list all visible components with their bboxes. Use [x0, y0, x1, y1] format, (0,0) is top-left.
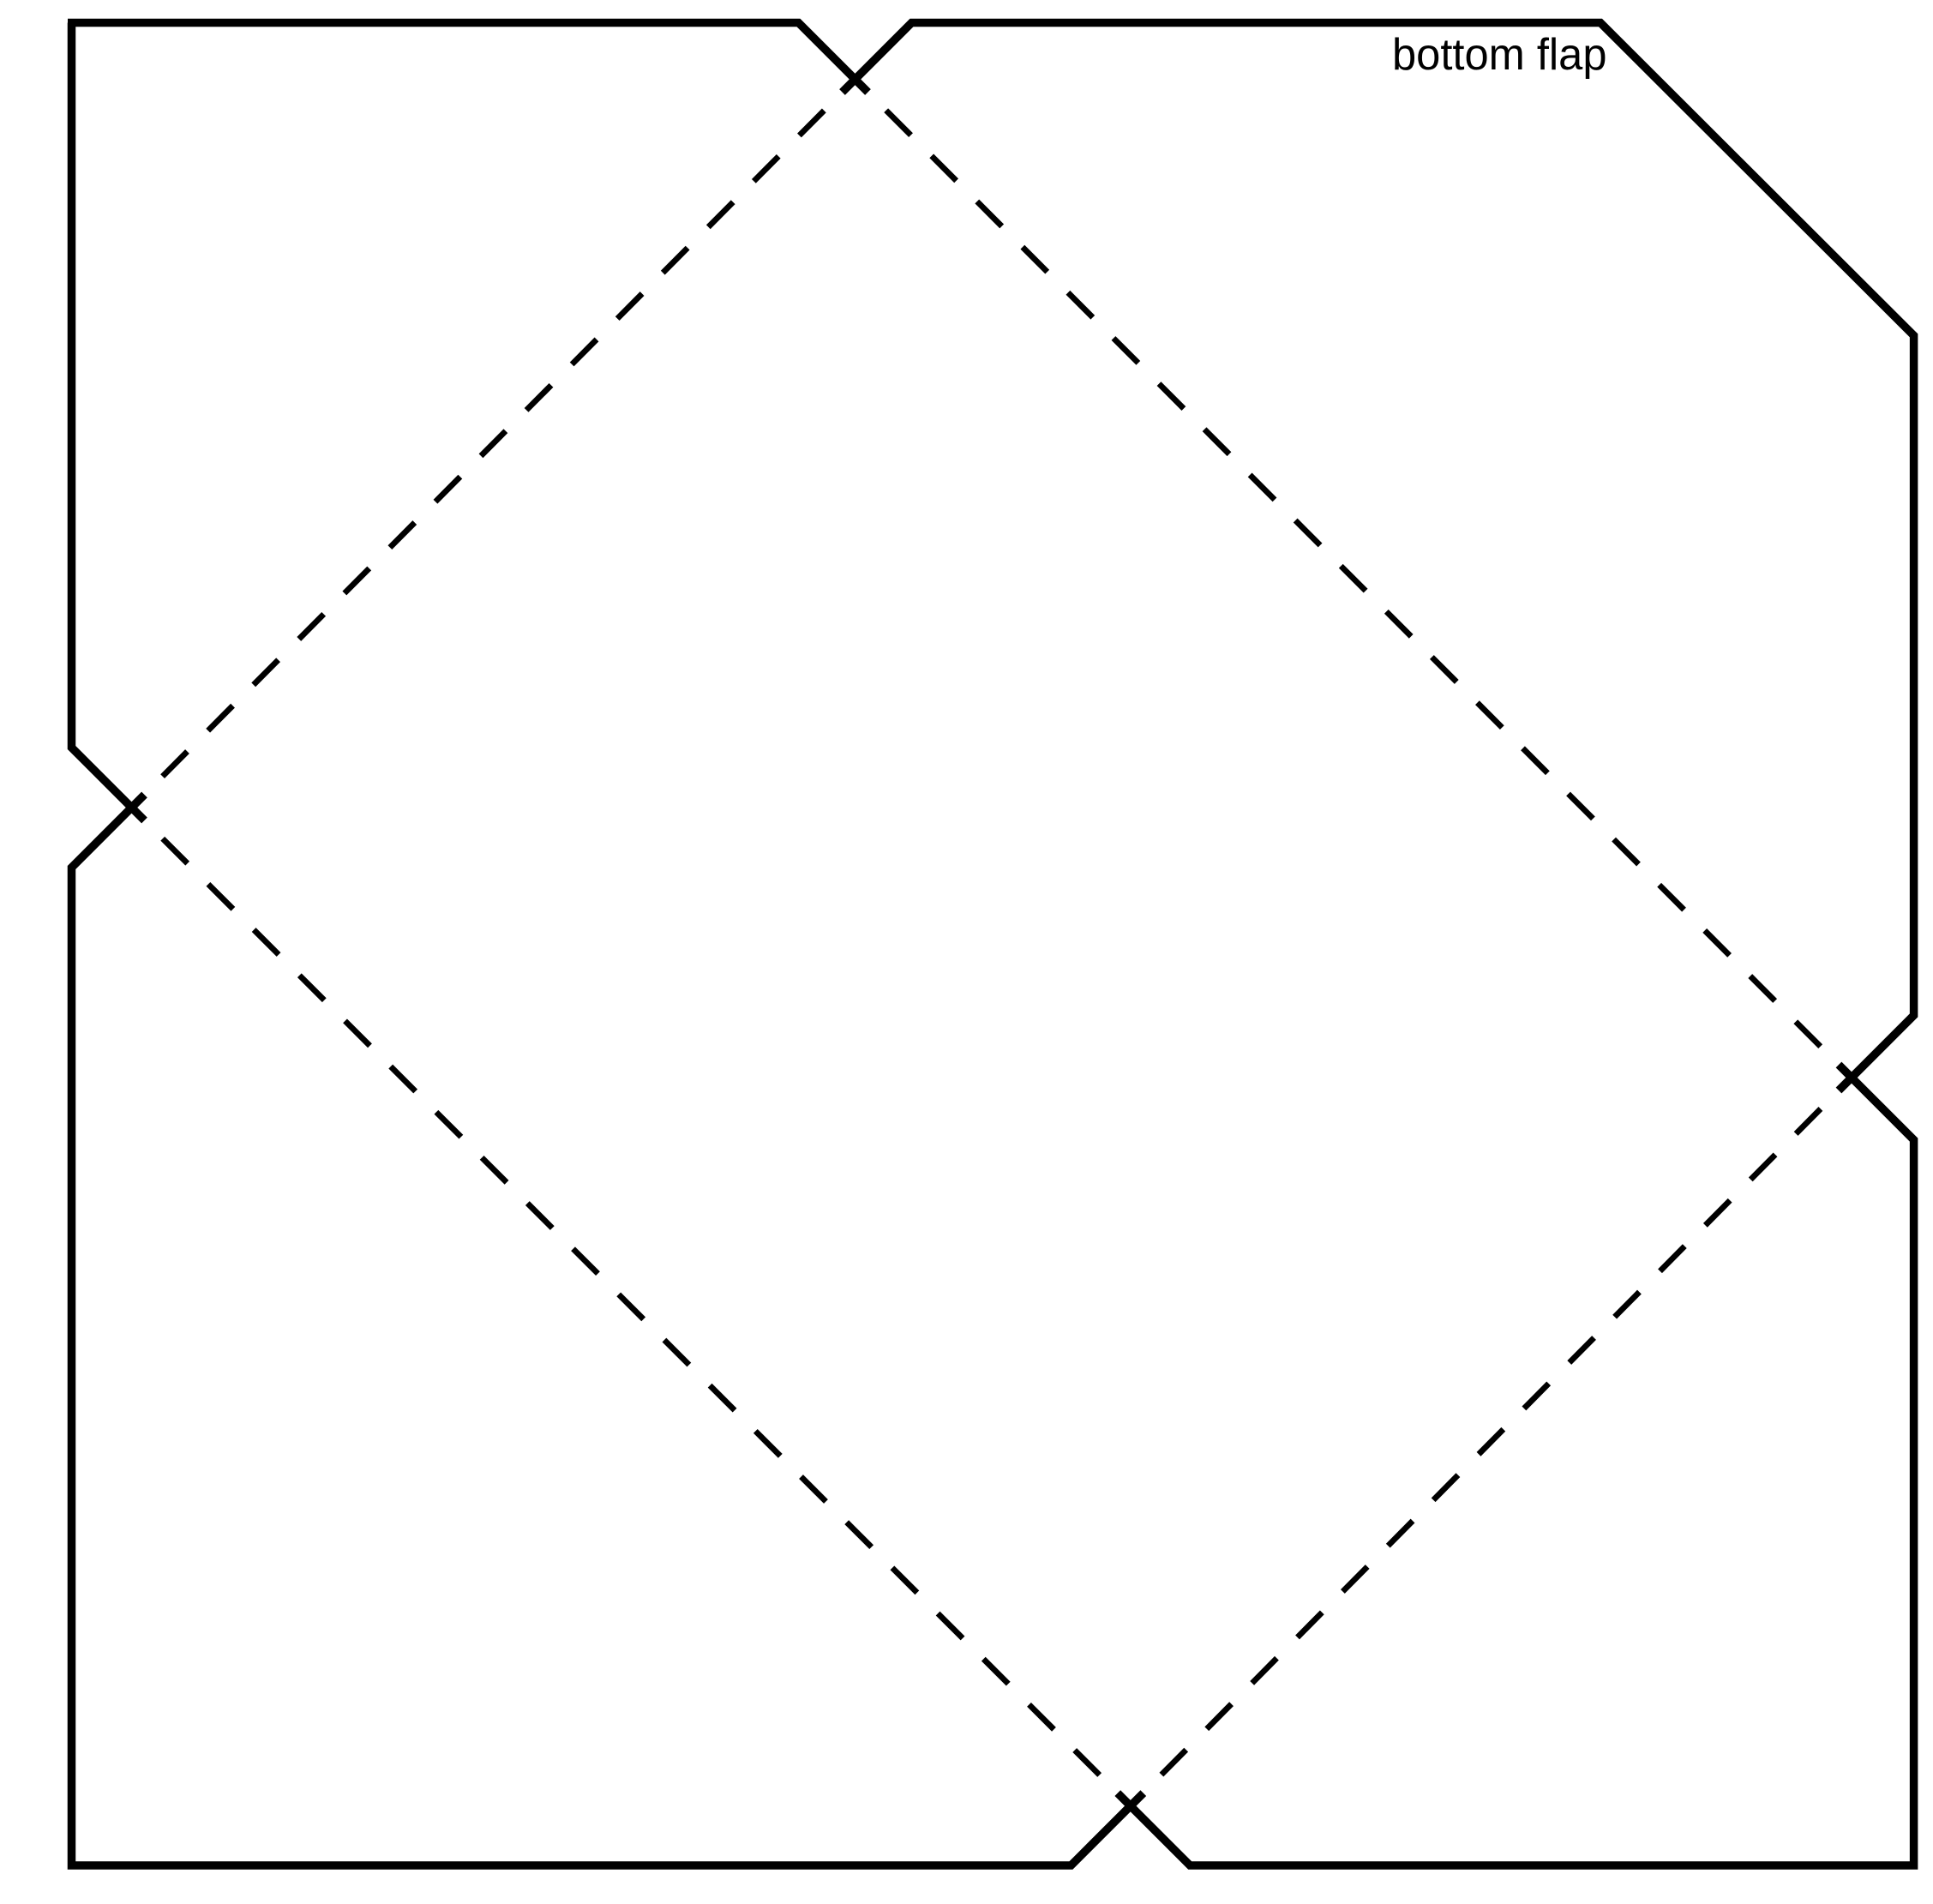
- svg-text:bottom flap: bottom flap: [1392, 30, 1607, 80]
